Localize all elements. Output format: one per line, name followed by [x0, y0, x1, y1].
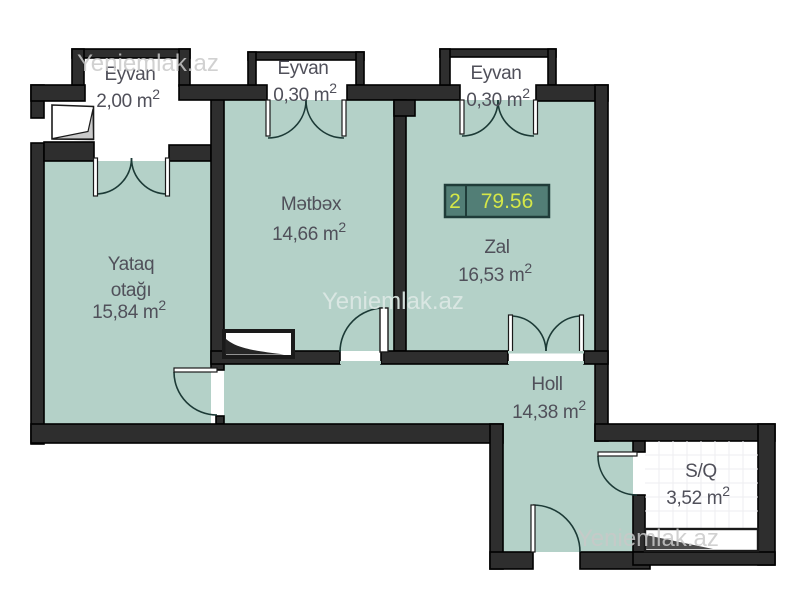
svg-text:Yeniemlak.az: Yeniemlak.az: [322, 288, 464, 315]
svg-text:Mətbəx: Mətbəx: [281, 194, 342, 215]
svg-text:Eyvan: Eyvan: [277, 58, 328, 79]
svg-text:Eyvan: Eyvan: [470, 63, 521, 84]
svg-text:otağı: otağı: [111, 280, 152, 301]
svg-text:Yeniemlak.az: Yeniemlak.az: [577, 525, 719, 552]
svg-text:Yataq: Yataq: [108, 254, 155, 275]
svg-text:2: 2: [449, 190, 461, 213]
svg-text:Yeniemlak.az: Yeniemlak.az: [77, 50, 219, 77]
svg-text:79.56: 79.56: [481, 190, 534, 213]
svg-text:Zal: Zal: [484, 237, 509, 258]
svg-text:Holl: Holl: [531, 374, 562, 395]
svg-text:S/Q: S/Q: [685, 461, 717, 482]
